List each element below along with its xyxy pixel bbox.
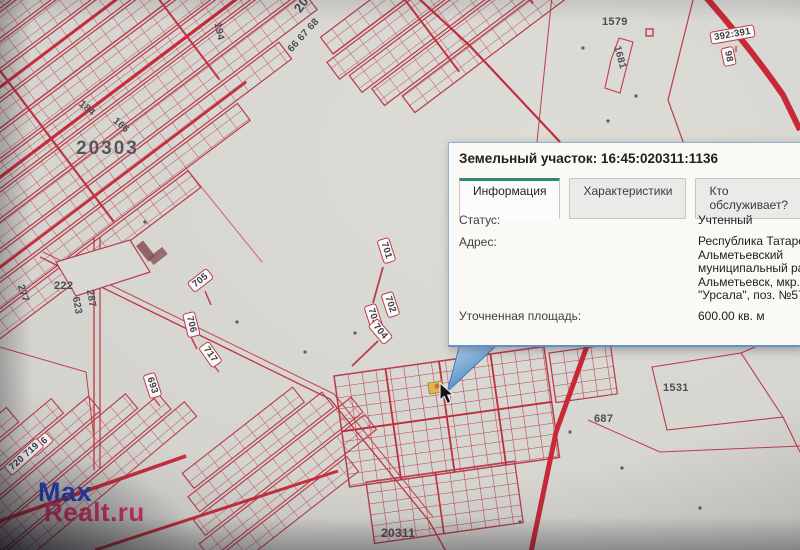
field-status-label: Статус: <box>459 213 500 227</box>
parcel-label: 687 <box>594 414 613 425</box>
screen: 20303 194 184 166 66 67 68 203 1579 1681… <box>0 0 800 550</box>
address-line: "Урсала", поз. №57 <box>698 289 800 303</box>
address-line: муниципальный ра <box>698 262 800 276</box>
parcel-label: 277 <box>15 283 31 303</box>
address-line: Альметьевский <box>698 249 800 263</box>
quarter-label: 20303 <box>76 143 139 154</box>
quarter-label: 203 <box>292 0 314 14</box>
watermark: Max Realt.ru <box>38 481 145 524</box>
map-photo: 20303 194 184 166 66 67 68 203 1579 1681… <box>0 0 800 550</box>
parcel-label: 1531 <box>663 383 689 394</box>
field-address-label: Адрес: <box>459 235 497 249</box>
parcel-label: 1681 <box>611 45 628 71</box>
parcel-info-popup: Земельный участок: 16:45:020311:1136 Инф… <box>448 142 800 347</box>
boxed-parcel-label: 392:391 <box>709 24 756 45</box>
parcel-label: 1579 <box>602 17 628 28</box>
boxed-parcel-label: 693 <box>142 372 162 400</box>
boxed-parcel-label: 720 719 <box>3 437 45 476</box>
popup-title: Земельный участок: 16:45:020311:1136 <box>459 151 718 166</box>
parcel-label: 623 <box>70 296 84 315</box>
parcel-label: 66 67 68 <box>286 16 322 54</box>
field-area-value: 600.00 кв. м <box>698 309 765 323</box>
watermark-line2: Realt.ru <box>44 501 145 524</box>
parcel-label: 184 <box>77 99 98 119</box>
boxed-parcel-label: 706 <box>182 311 201 338</box>
field-status-value: Учтенный <box>698 213 753 227</box>
tab-characteristics[interactable]: Характеристики <box>569 178 686 219</box>
parcel-label: 287 <box>84 289 98 308</box>
boxed-parcel-label: 717 <box>198 341 223 369</box>
boxed-parcel-label: 98 <box>720 46 737 67</box>
address-line: Республика Татарс <box>698 235 800 249</box>
parcel-label: 222 <box>54 281 73 292</box>
boxed-parcel-label: 704 <box>367 318 393 345</box>
parcel-label: 194 <box>212 22 226 41</box>
boxed-parcel-label: 702 <box>380 291 400 319</box>
parcel-label: 166 <box>111 116 132 136</box>
field-address-value: Республика Татарс Альметьевский муниципа… <box>698 235 800 303</box>
boxed-parcel-label: 705 <box>187 268 215 293</box>
boxed-parcel-label: 701 <box>376 237 396 265</box>
quarter-label: 20311 <box>381 528 415 539</box>
field-area-label: Уточненная площадь: <box>459 309 581 323</box>
address-line: Альметьевск, мкр. <box>698 276 800 290</box>
